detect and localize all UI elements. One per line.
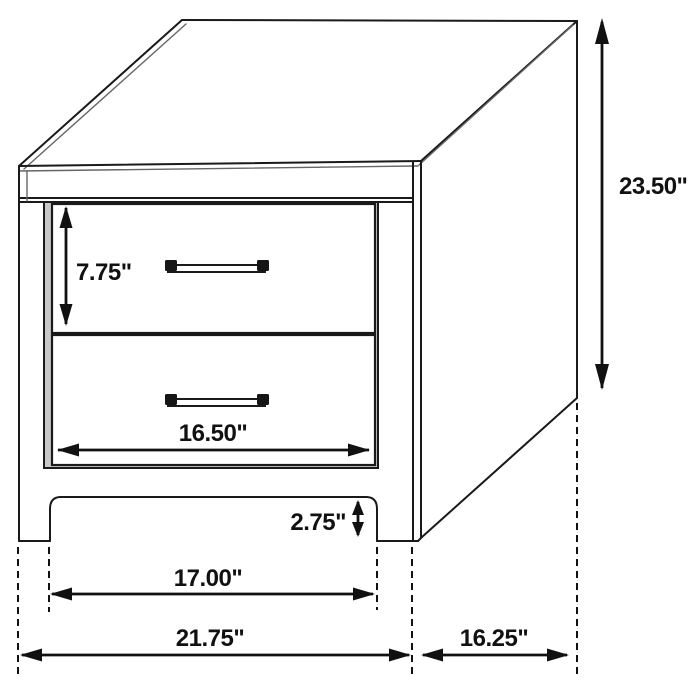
dim-leg-span-label: 17.00" [174,565,242,592]
dim-leg-height-label: 2.75" [290,509,346,536]
dim-leg-span: 17.00" [50,565,375,601]
dim-overall-width: 21.75" [20,625,411,662]
dim-drawer-height-label: 7.75" [76,259,132,286]
dim-depth: 16.25" [421,625,569,662]
dim-overall-height: 23.50" [595,18,687,390]
dim-drawer-width-label: 16.50" [179,420,247,447]
dim-depth-label: 16.25" [460,625,528,652]
diagram-canvas: 23.50" 7.75" 16.50" 2.75" 17 [0,0,700,700]
nightstand-dimension-drawing: 23.50" 7.75" 16.50" 2.75" 17 [0,0,700,700]
dim-overall-height-label: 23.50" [619,173,687,200]
dim-overall-width-label: 21.75" [176,625,244,652]
